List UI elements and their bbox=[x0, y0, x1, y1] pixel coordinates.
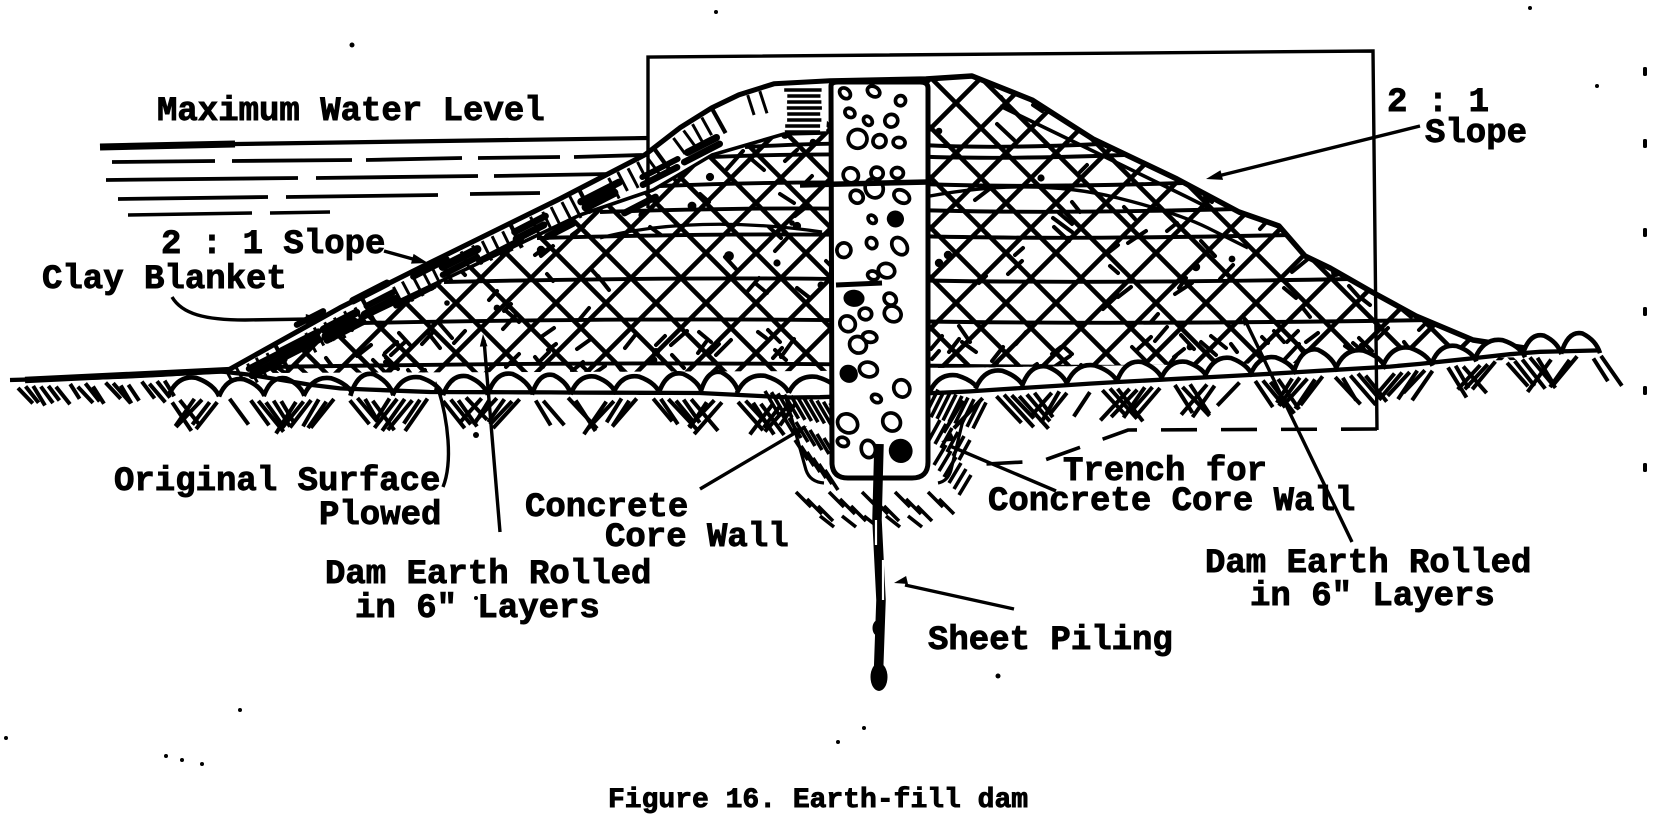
svg-text:Concrete Core Wall: Concrete Core Wall bbox=[988, 483, 1355, 521]
svg-text:in 6" Layers: in 6" Layers bbox=[355, 590, 600, 628]
svg-text:in 6" Layers: in 6" Layers bbox=[1250, 578, 1495, 616]
svg-text:Core Wall: Core Wall bbox=[605, 519, 789, 557]
svg-text:Slope: Slope bbox=[1425, 115, 1527, 153]
svg-text:Sheet Piling: Sheet Piling bbox=[928, 622, 1173, 660]
svg-text:Plowed: Plowed bbox=[319, 497, 441, 535]
svg-text:2 : 1 Slope: 2 : 1 Slope bbox=[161, 226, 385, 264]
svg-text:Dam Earth Rolled: Dam Earth Rolled bbox=[325, 556, 651, 594]
svg-text:Figure 16. Earth-fill dam: Figure 16. Earth-fill dam bbox=[608, 785, 1028, 816]
svg-text:Clay Blanket: Clay Blanket bbox=[42, 261, 287, 299]
svg-text:Maximum Water Level: Maximum Water Level bbox=[157, 93, 545, 131]
svg-text:Original Surface: Original Surface bbox=[114, 463, 440, 501]
